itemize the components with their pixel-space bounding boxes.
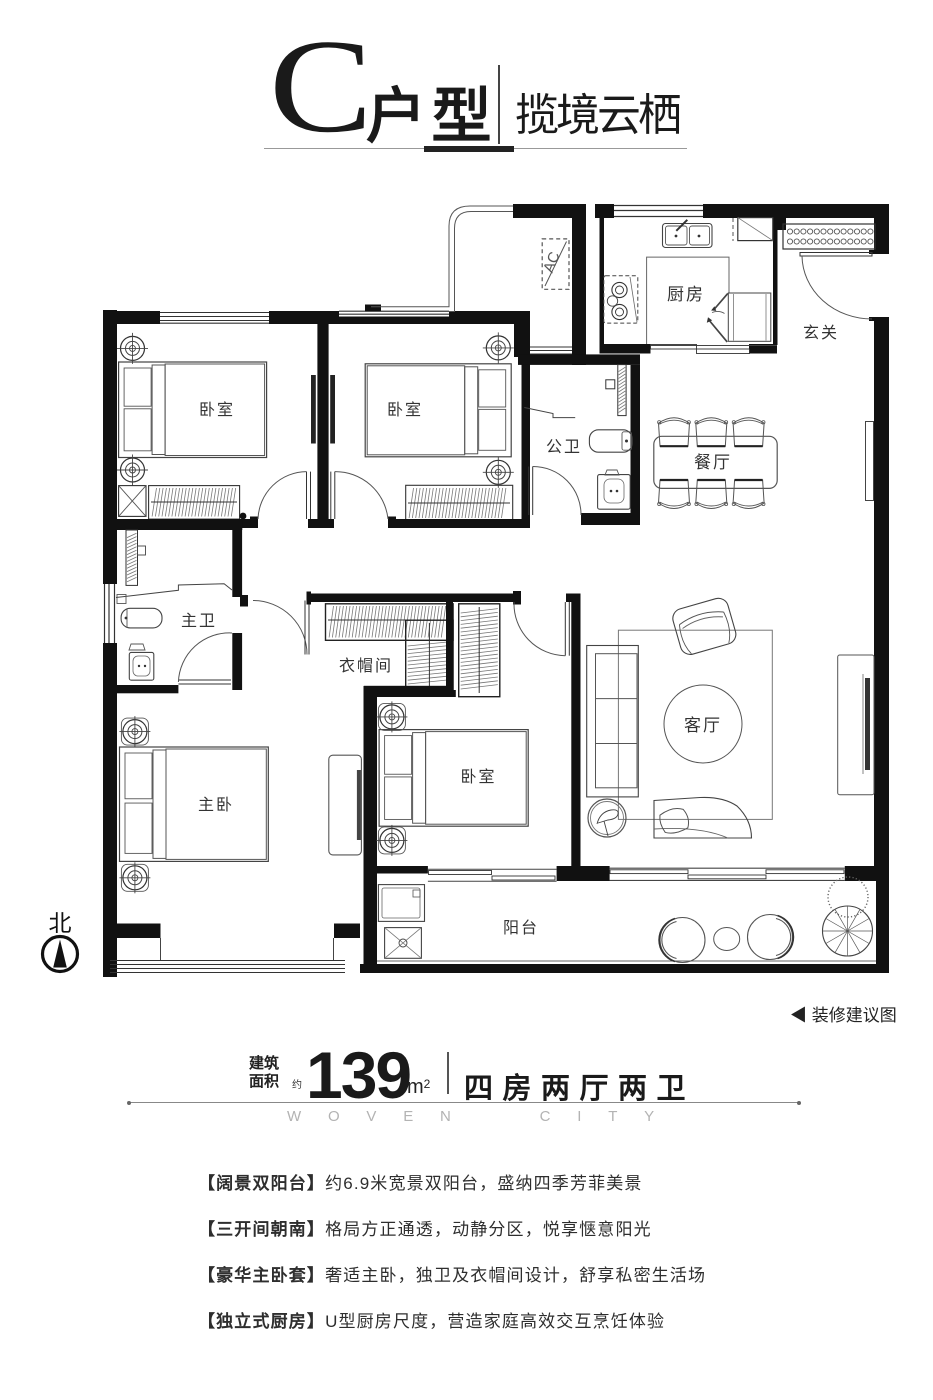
svg-text:衣帽间: 衣帽间 bbox=[339, 657, 393, 675]
svg-text:厨房: 厨房 bbox=[667, 285, 705, 304]
svg-text:客厅: 客厅 bbox=[684, 716, 722, 735]
svg-text:主卧: 主卧 bbox=[198, 796, 234, 814]
svg-text:餐厅: 餐厅 bbox=[694, 453, 732, 472]
svg-text:公卫: 公卫 bbox=[546, 439, 582, 456]
svg-text:AC: AC bbox=[540, 249, 564, 275]
svg-text:卧室: 卧室 bbox=[460, 768, 496, 786]
svg-text:主卫: 主卫 bbox=[181, 612, 217, 630]
svg-text:卧室: 卧室 bbox=[199, 401, 235, 419]
svg-text:北: 北 bbox=[49, 910, 72, 936]
svg-text:阳台: 阳台 bbox=[503, 919, 539, 937]
svg-text:卧室: 卧室 bbox=[387, 401, 423, 419]
svg-text:玄关: 玄关 bbox=[803, 324, 839, 342]
